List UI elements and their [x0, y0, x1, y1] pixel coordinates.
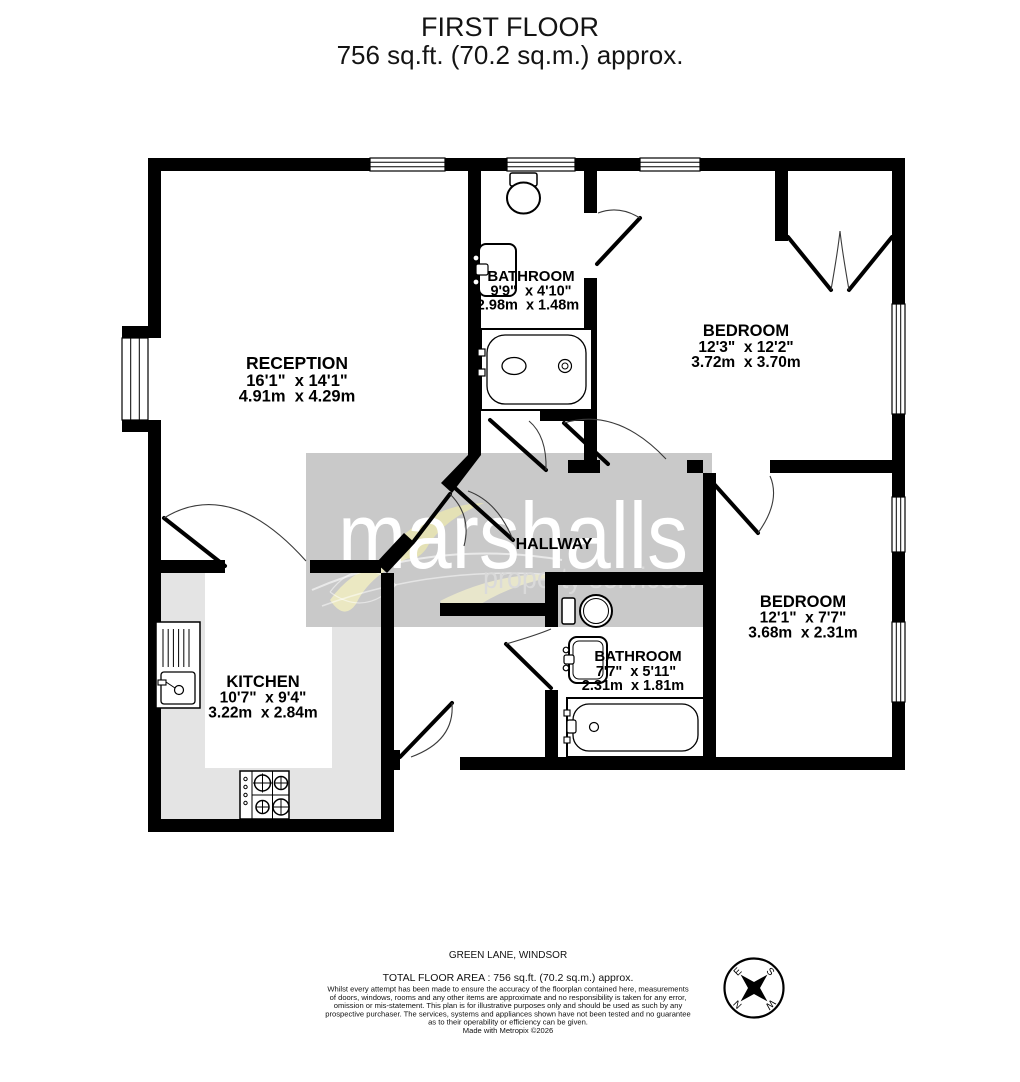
door-bedroom-top-upper — [597, 210, 640, 264]
wall-exterior-bottom-right — [460, 757, 905, 770]
wall-bathroom-bottom-left — [545, 585, 558, 627]
wall-window-stub — [122, 420, 148, 432]
bathroom-bottom-metric: 2.31m x 1.81m — [582, 678, 684, 694]
bathroom-top-metric: 2.98m x 1.48m — [477, 298, 579, 314]
wall-kitchen-top-right — [310, 560, 381, 573]
footer-address: GREEN LANE, WINDSOR — [449, 950, 567, 961]
window-top-bathroom — [507, 158, 575, 171]
bath-top — [478, 329, 592, 410]
window-top-reception — [370, 158, 445, 171]
door-entry — [400, 703, 452, 757]
footer-total-area: TOTAL FLOOR AREA : 756 sq.ft. (70.2 sq.m… — [383, 972, 634, 984]
toilet-top — [507, 173, 540, 214]
door-bedroom-bottom — [706, 475, 774, 533]
label-bedroom-bottom: BEDROOM 12'1" x 7'7" 3.68m x 2.31m — [748, 593, 857, 642]
kitchen-name: KITCHEN — [226, 673, 299, 691]
footer: GREEN LANE, WINDSOR TOTAL FLOOR AREA : 7… — [325, 950, 690, 1035]
window-right-bedroom-bottom-1 — [892, 497, 905, 552]
wall-exterior-right — [892, 414, 905, 497]
label-bathroom-top: BATHROOM 9'9" x 4'10" 2.98m x 1.48m — [477, 268, 579, 314]
bedroom-top-metric: 3.72m x 3.70m — [691, 354, 800, 371]
wall-exterior-right — [892, 552, 905, 622]
wall-divider-upper — [584, 171, 597, 213]
window-left-reception — [122, 338, 148, 420]
reception-name: RECEPTION — [246, 353, 348, 373]
kitchen-sink-unit — [156, 622, 200, 708]
compass-star-icon — [741, 975, 768, 1002]
watermark: marshalls property services — [306, 453, 712, 627]
bedroom-top-name: BEDROOM — [703, 322, 789, 340]
kitchen-metric: 3.22m x 2.84m — [208, 705, 317, 722]
wall-bathroom-bottom-top — [545, 572, 716, 585]
door-kitchen — [164, 505, 306, 566]
wall-bathroom-bottom-left — [545, 690, 558, 757]
footer-credit: Made with Metropix ©2026 — [463, 1026, 553, 1035]
wall-kitchen-top-left — [161, 560, 225, 573]
wall-window-stub — [122, 326, 148, 338]
wall-kitchen-right — [381, 573, 394, 819]
reception-metric: 4.91m x 4.29m — [239, 388, 356, 406]
label-hallway: HALLWAY — [516, 536, 593, 553]
floor-area-subtitle: 756 sq.ft. (70.2 sq.m.) approx. — [337, 40, 684, 70]
door-closet-double — [788, 231, 892, 290]
bathroom-bottom-name: BATHROOM — [594, 648, 681, 665]
wall-hall-stub — [568, 460, 600, 473]
toilet-bottom — [562, 595, 612, 627]
wall-kitchen-bottom — [148, 819, 394, 832]
door-bathroom-bottom — [506, 629, 551, 688]
label-bedroom-top: BEDROOM 12'3" x 12'2" 3.72m x 3.70m — [691, 322, 800, 371]
compass-rose: E S W N — [725, 959, 784, 1018]
window-top-bedroom — [640, 158, 700, 171]
label-bathroom-bottom: BATHROOM 7'7" x 5'11" 2.31m x 1.81m — [582, 648, 684, 694]
window-right-bedroom-bottom-2 — [892, 622, 905, 702]
bathroom-top-name: BATHROOM — [487, 268, 574, 285]
window-right-bedroom-top — [892, 304, 905, 414]
wall-bedroom-divider — [687, 460, 703, 473]
bedroom-bottom-name: BEDROOM — [760, 593, 846, 611]
page-title: FIRST FLOOR 756 sq.ft. (70.2 sq.m.) appr… — [337, 12, 684, 70]
wall-hallway-internal — [440, 603, 545, 616]
wall-closet-stub — [775, 171, 788, 241]
label-reception: RECEPTION 16'1" x 14'1" 4.91m x 4.29m — [239, 353, 356, 406]
bath-bottom — [564, 698, 704, 757]
floorplan-canvas: FIRST FLOOR 756 sq.ft. (70.2 sq.m.) appr… — [0, 0, 1020, 1082]
wall-bedroom-divider — [770, 460, 905, 473]
floor-title: FIRST FLOOR — [421, 12, 599, 42]
kitchen-hob — [240, 771, 289, 819]
bedroom-bottom-metric: 3.68m x 2.31m — [748, 625, 857, 642]
floorplan-page: FIRST FLOOR 756 sq.ft. (70.2 sq.m.) appr… — [0, 0, 1020, 1082]
wall-exterior-left-upper — [148, 171, 161, 338]
hallway-name: HALLWAY — [516, 536, 593, 553]
wall-exterior-right — [892, 171, 905, 304]
